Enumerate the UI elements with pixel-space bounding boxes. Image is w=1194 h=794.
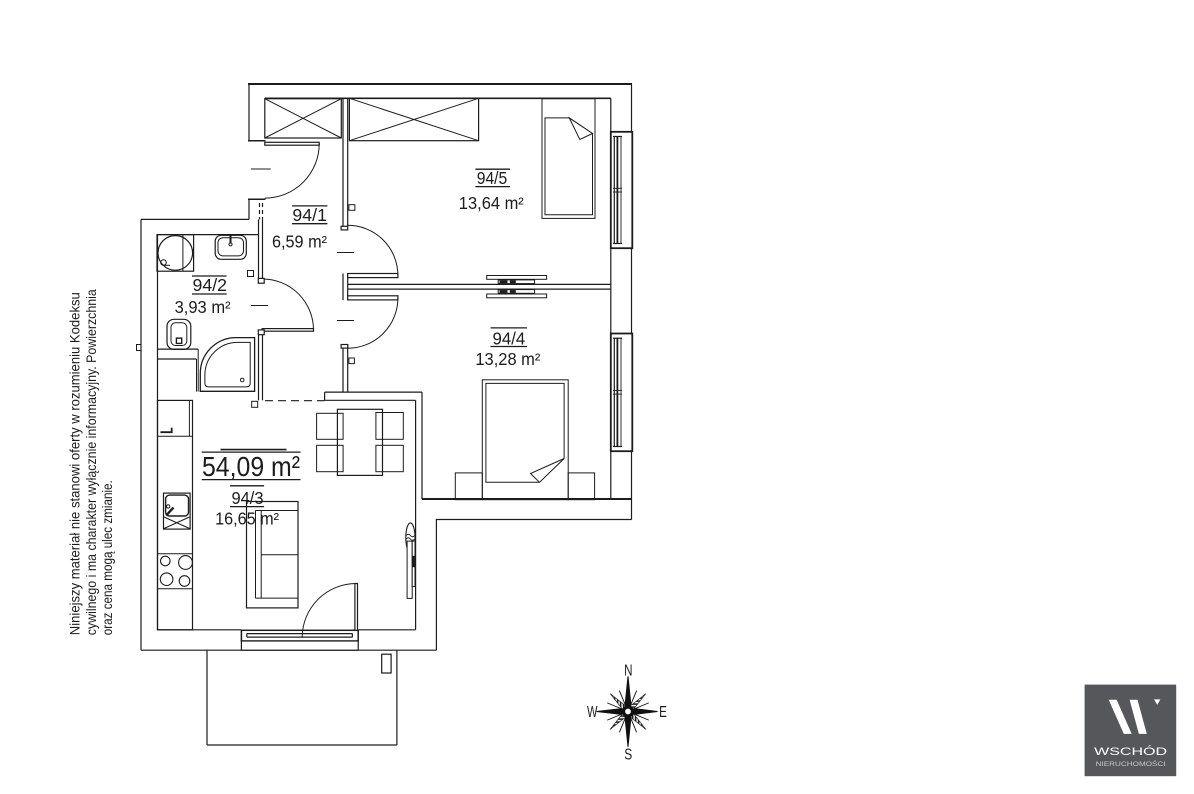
- svg-text:cywilnego i ma charakter wyłąc: cywilnego i ma charakter wyłącznie infor…: [83, 289, 99, 635]
- svg-text:54,09 m²: 54,09 m²: [202, 451, 300, 482]
- svg-text:94/1: 94/1: [292, 206, 327, 225]
- svg-text:94/5: 94/5: [477, 169, 508, 188]
- svg-text:94/3: 94/3: [232, 489, 264, 508]
- svg-text:W: W: [587, 704, 598, 721]
- svg-text:S: S: [624, 747, 632, 764]
- svg-text:3,93 m²: 3,93 m²: [175, 298, 231, 317]
- svg-text:94/4: 94/4: [493, 330, 526, 349]
- svg-text:16,65 m²: 16,65 m²: [215, 509, 279, 528]
- svg-text:oraz cena mogą ulec zmianie.: oraz cena mogą ulec zmianie.: [99, 480, 115, 635]
- svg-text:N: N: [624, 662, 632, 679]
- svg-text:13,64 m²: 13,64 m²: [459, 194, 524, 213]
- svg-text:Niniejszy materiał nie stanowi: Niniejszy materiał nie stanowi oferty w …: [67, 292, 83, 635]
- svg-text:94/2: 94/2: [193, 276, 228, 295]
- svg-text:NIERUCHOMOŚCI: NIERUCHOMOŚCI: [1096, 760, 1166, 768]
- svg-text:E: E: [659, 704, 667, 721]
- svg-text:13,28 m²: 13,28 m²: [475, 350, 540, 369]
- svg-text:WSCHÓD: WSCHÓD: [1094, 745, 1167, 758]
- svg-text:6,59 m²: 6,59 m²: [272, 232, 327, 251]
